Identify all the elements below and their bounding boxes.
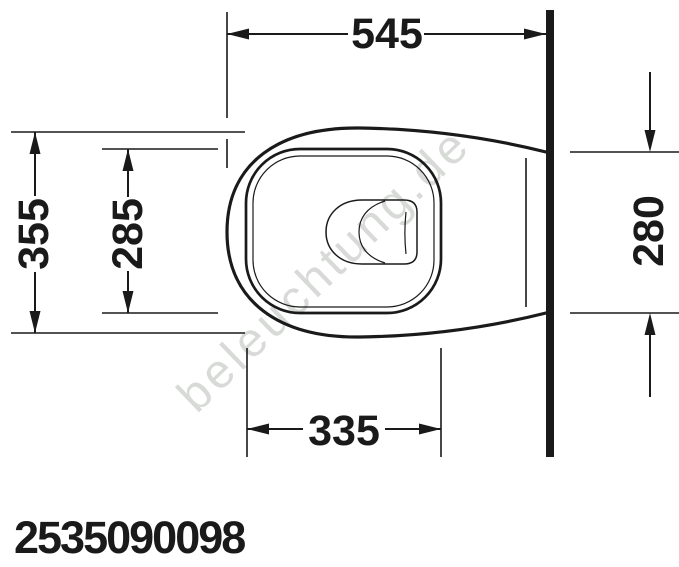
dim-355-label: 355	[10, 198, 58, 270]
arrowhead-355-top	[30, 132, 41, 154]
dimension-280: 280	[570, 72, 679, 397]
arrowhead-545-right	[524, 29, 546, 40]
dim-280-label: 280	[625, 195, 673, 267]
arrowhead-335-left	[247, 424, 269, 435]
arrowhead-285-top	[123, 149, 134, 171]
dim-285-label: 285	[104, 198, 152, 270]
dim-335-label: 335	[308, 407, 380, 455]
arrowhead-355-bottom	[30, 311, 41, 333]
watermark-text: beleuchtung.de	[168, 117, 481, 422]
arrowhead-280-bottom	[645, 313, 656, 335]
arrowhead-280-top	[645, 130, 656, 152]
dimension-285: 285	[102, 149, 218, 313]
arrowhead-335-right	[419, 424, 441, 435]
dimension-335: 335	[247, 348, 441, 457]
arrowhead-285-bottom	[123, 291, 134, 313]
dim-545-label: 545	[351, 10, 423, 58]
technical-drawing-page: beleuchtung.de 545 355	[0, 0, 679, 567]
product-code: 2535090098	[14, 512, 245, 563]
wall-section-bar	[546, 10, 554, 457]
technical-drawing-svg: beleuchtung.de 545 355	[0, 0, 679, 567]
drain-inner-line	[405, 212, 406, 254]
arrowhead-545-left	[227, 29, 249, 40]
